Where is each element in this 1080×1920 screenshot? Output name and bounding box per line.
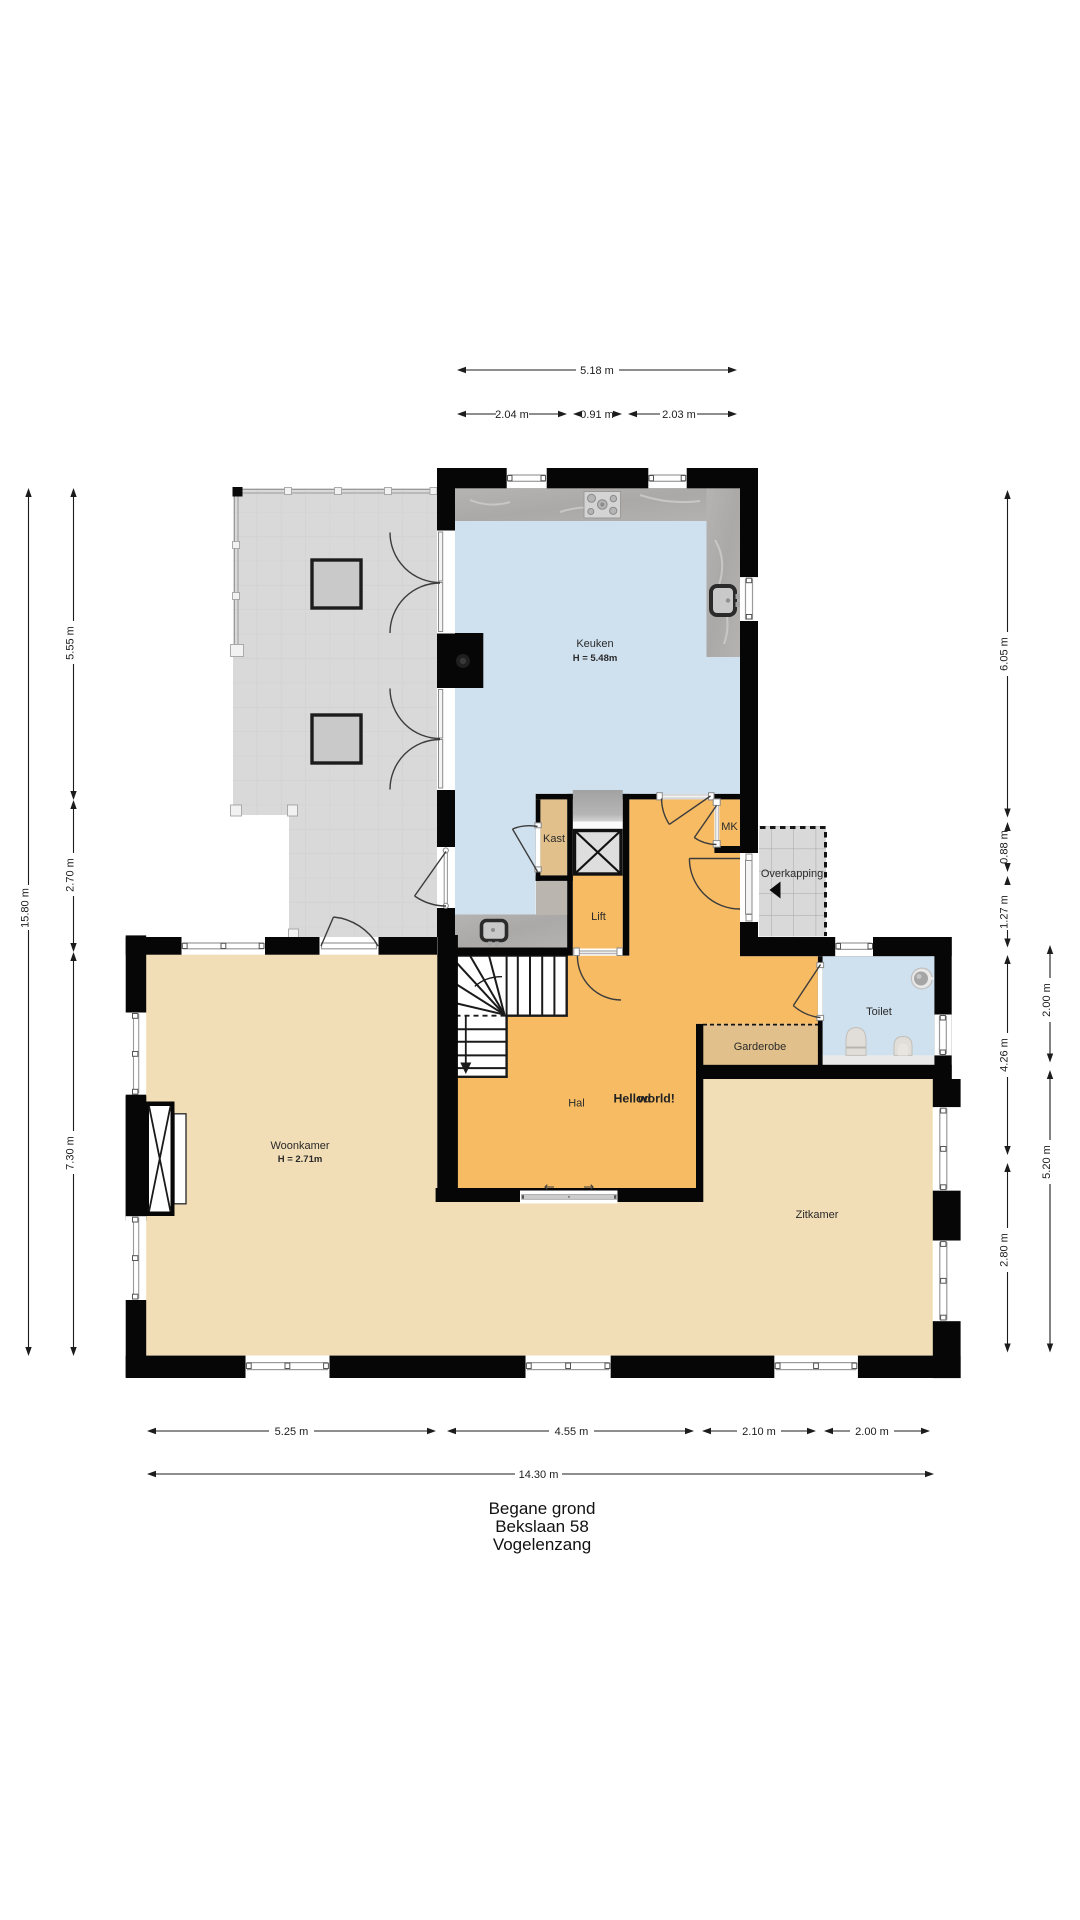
svg-text:Toilet: Toilet (866, 1006, 892, 1018)
svg-text:Bekslaan 58: Bekslaan 58 (495, 1517, 589, 1536)
svg-text:Keuken: Keuken (576, 638, 613, 650)
svg-text:14.30 m: 14.30 m (519, 1469, 559, 1481)
svg-text:Begane grond: Begane grond (489, 1499, 596, 1518)
svg-text:4.55 m: 4.55 m (555, 1426, 589, 1438)
svg-text:Lift: Lift (591, 911, 606, 923)
svg-text:H = 5.48m: H = 5.48m (573, 653, 618, 664)
svg-text:6.05 m: 6.05 m (999, 637, 1011, 671)
svg-text:2.00 m: 2.00 m (855, 1426, 889, 1438)
svg-text:5.18 m: 5.18 m (580, 365, 614, 377)
svg-text:Overkapping: Overkapping (761, 868, 823, 880)
svg-text:0.91 m: 0.91 m (580, 409, 614, 421)
svg-text:Kast: Kast (543, 833, 565, 845)
svg-text:7.30 m: 7.30 m (65, 1136, 77, 1170)
svg-text:H = 2.71m: H = 2.71m (278, 1154, 323, 1165)
svg-text:Hal: Hal (568, 1098, 585, 1110)
svg-text:2.03 m: 2.03 m (662, 409, 696, 421)
svg-text:4.26 m: 4.26 m (999, 1038, 1011, 1072)
svg-text:1.27 m: 1.27 m (999, 895, 1011, 929)
svg-text:2.80 m: 2.80 m (999, 1233, 1011, 1267)
svg-text:15.80 m: 15.80 m (20, 888, 32, 928)
svg-text:2.04 m: 2.04 m (495, 409, 529, 421)
svg-text:5.55 m: 5.55 m (65, 626, 77, 660)
svg-text:2.00 m: 2.00 m (1041, 983, 1053, 1017)
svg-text:world!: world! (637, 1092, 675, 1106)
svg-text:MK: MK (721, 821, 738, 833)
svg-text:Vogelenzang: Vogelenzang (493, 1535, 591, 1554)
svg-text:0.88 m: 0.88 m (999, 830, 1011, 864)
svg-text:Garderobe: Garderobe (734, 1041, 787, 1053)
svg-text:2.70 m: 2.70 m (65, 858, 77, 892)
svg-text:2.10 m: 2.10 m (742, 1426, 776, 1438)
svg-text:Woonkamer: Woonkamer (270, 1140, 329, 1152)
svg-text:Zitkamer: Zitkamer (796, 1209, 839, 1221)
svg-text:5.20 m: 5.20 m (1041, 1145, 1053, 1179)
svg-text:5.25 m: 5.25 m (275, 1426, 309, 1438)
